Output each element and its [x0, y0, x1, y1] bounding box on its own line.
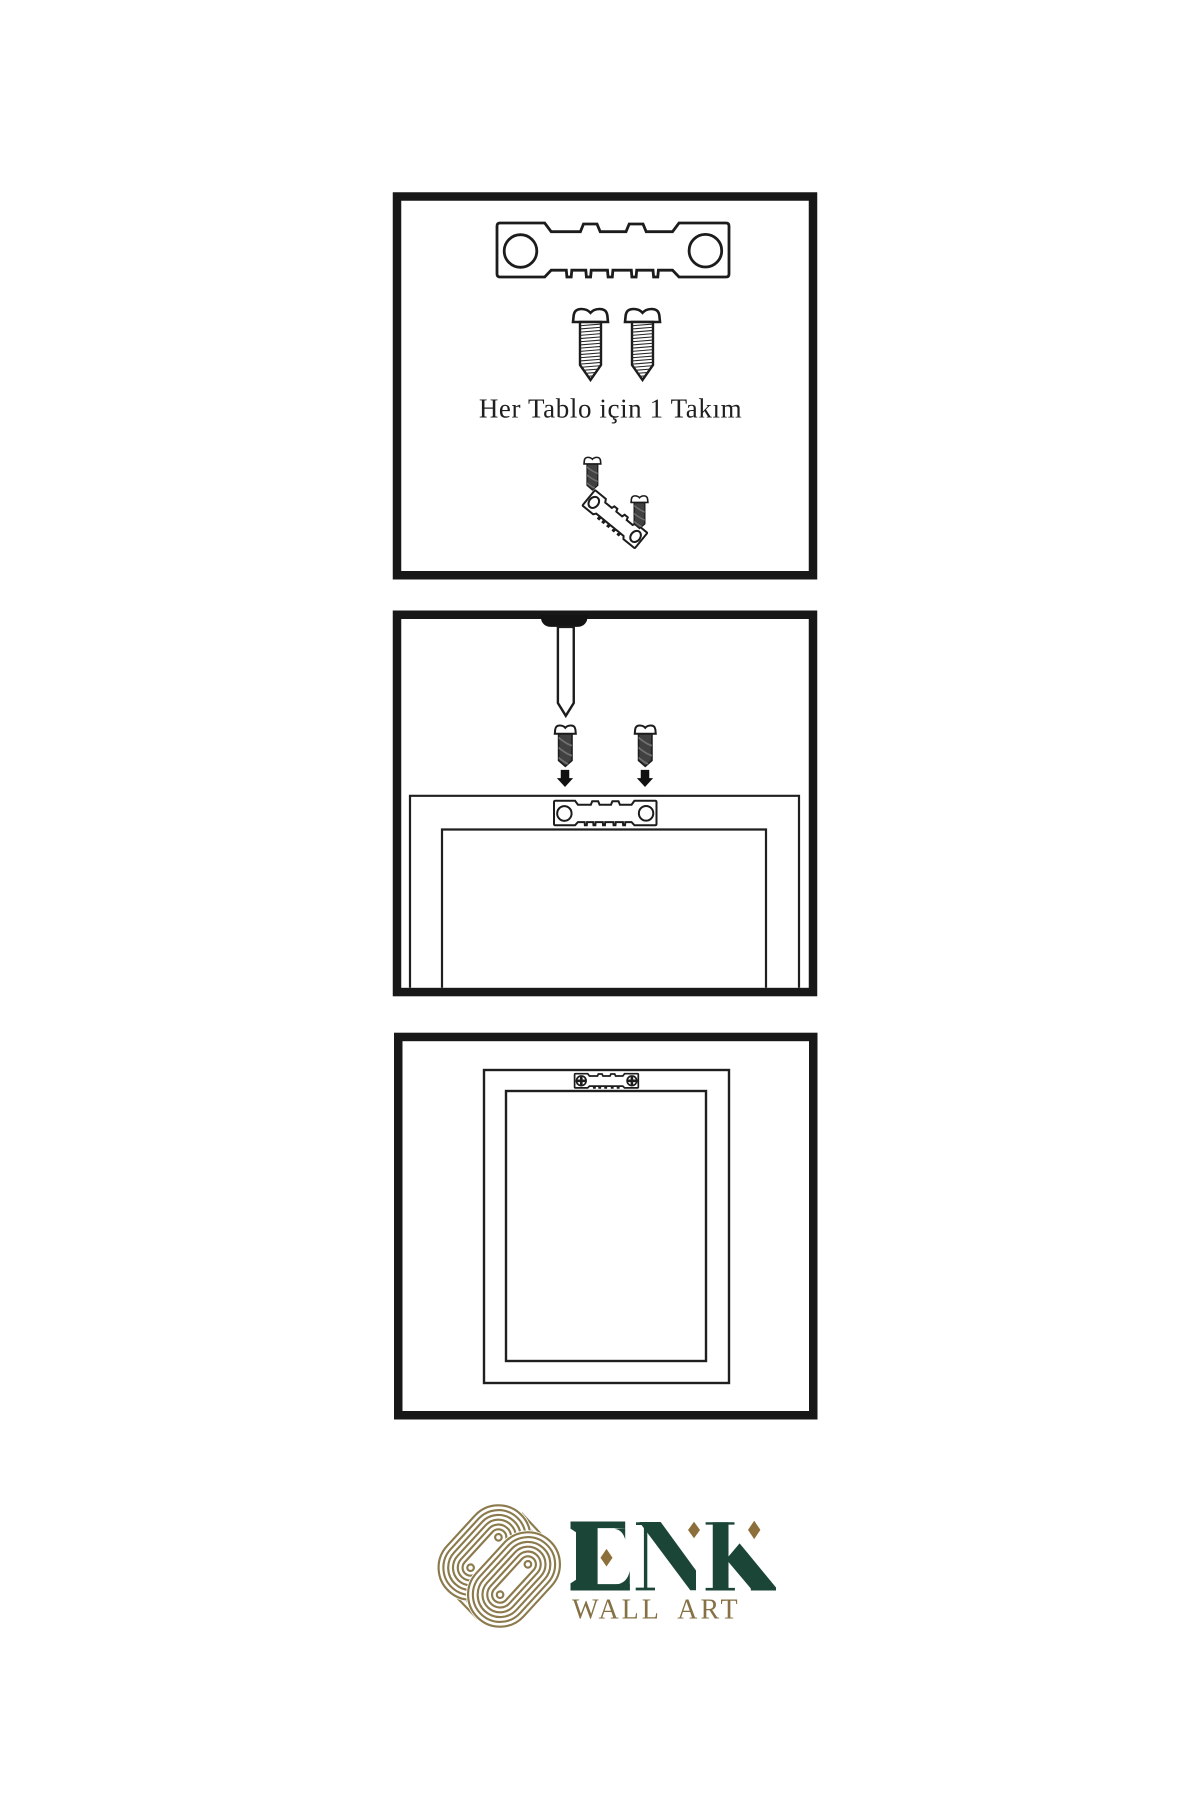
- svg-text:Her Tablo için 1 Takım: Her Tablo için 1 Takım: [479, 394, 742, 424]
- svg-text:WALL ART: WALL ART: [572, 1595, 741, 1626]
